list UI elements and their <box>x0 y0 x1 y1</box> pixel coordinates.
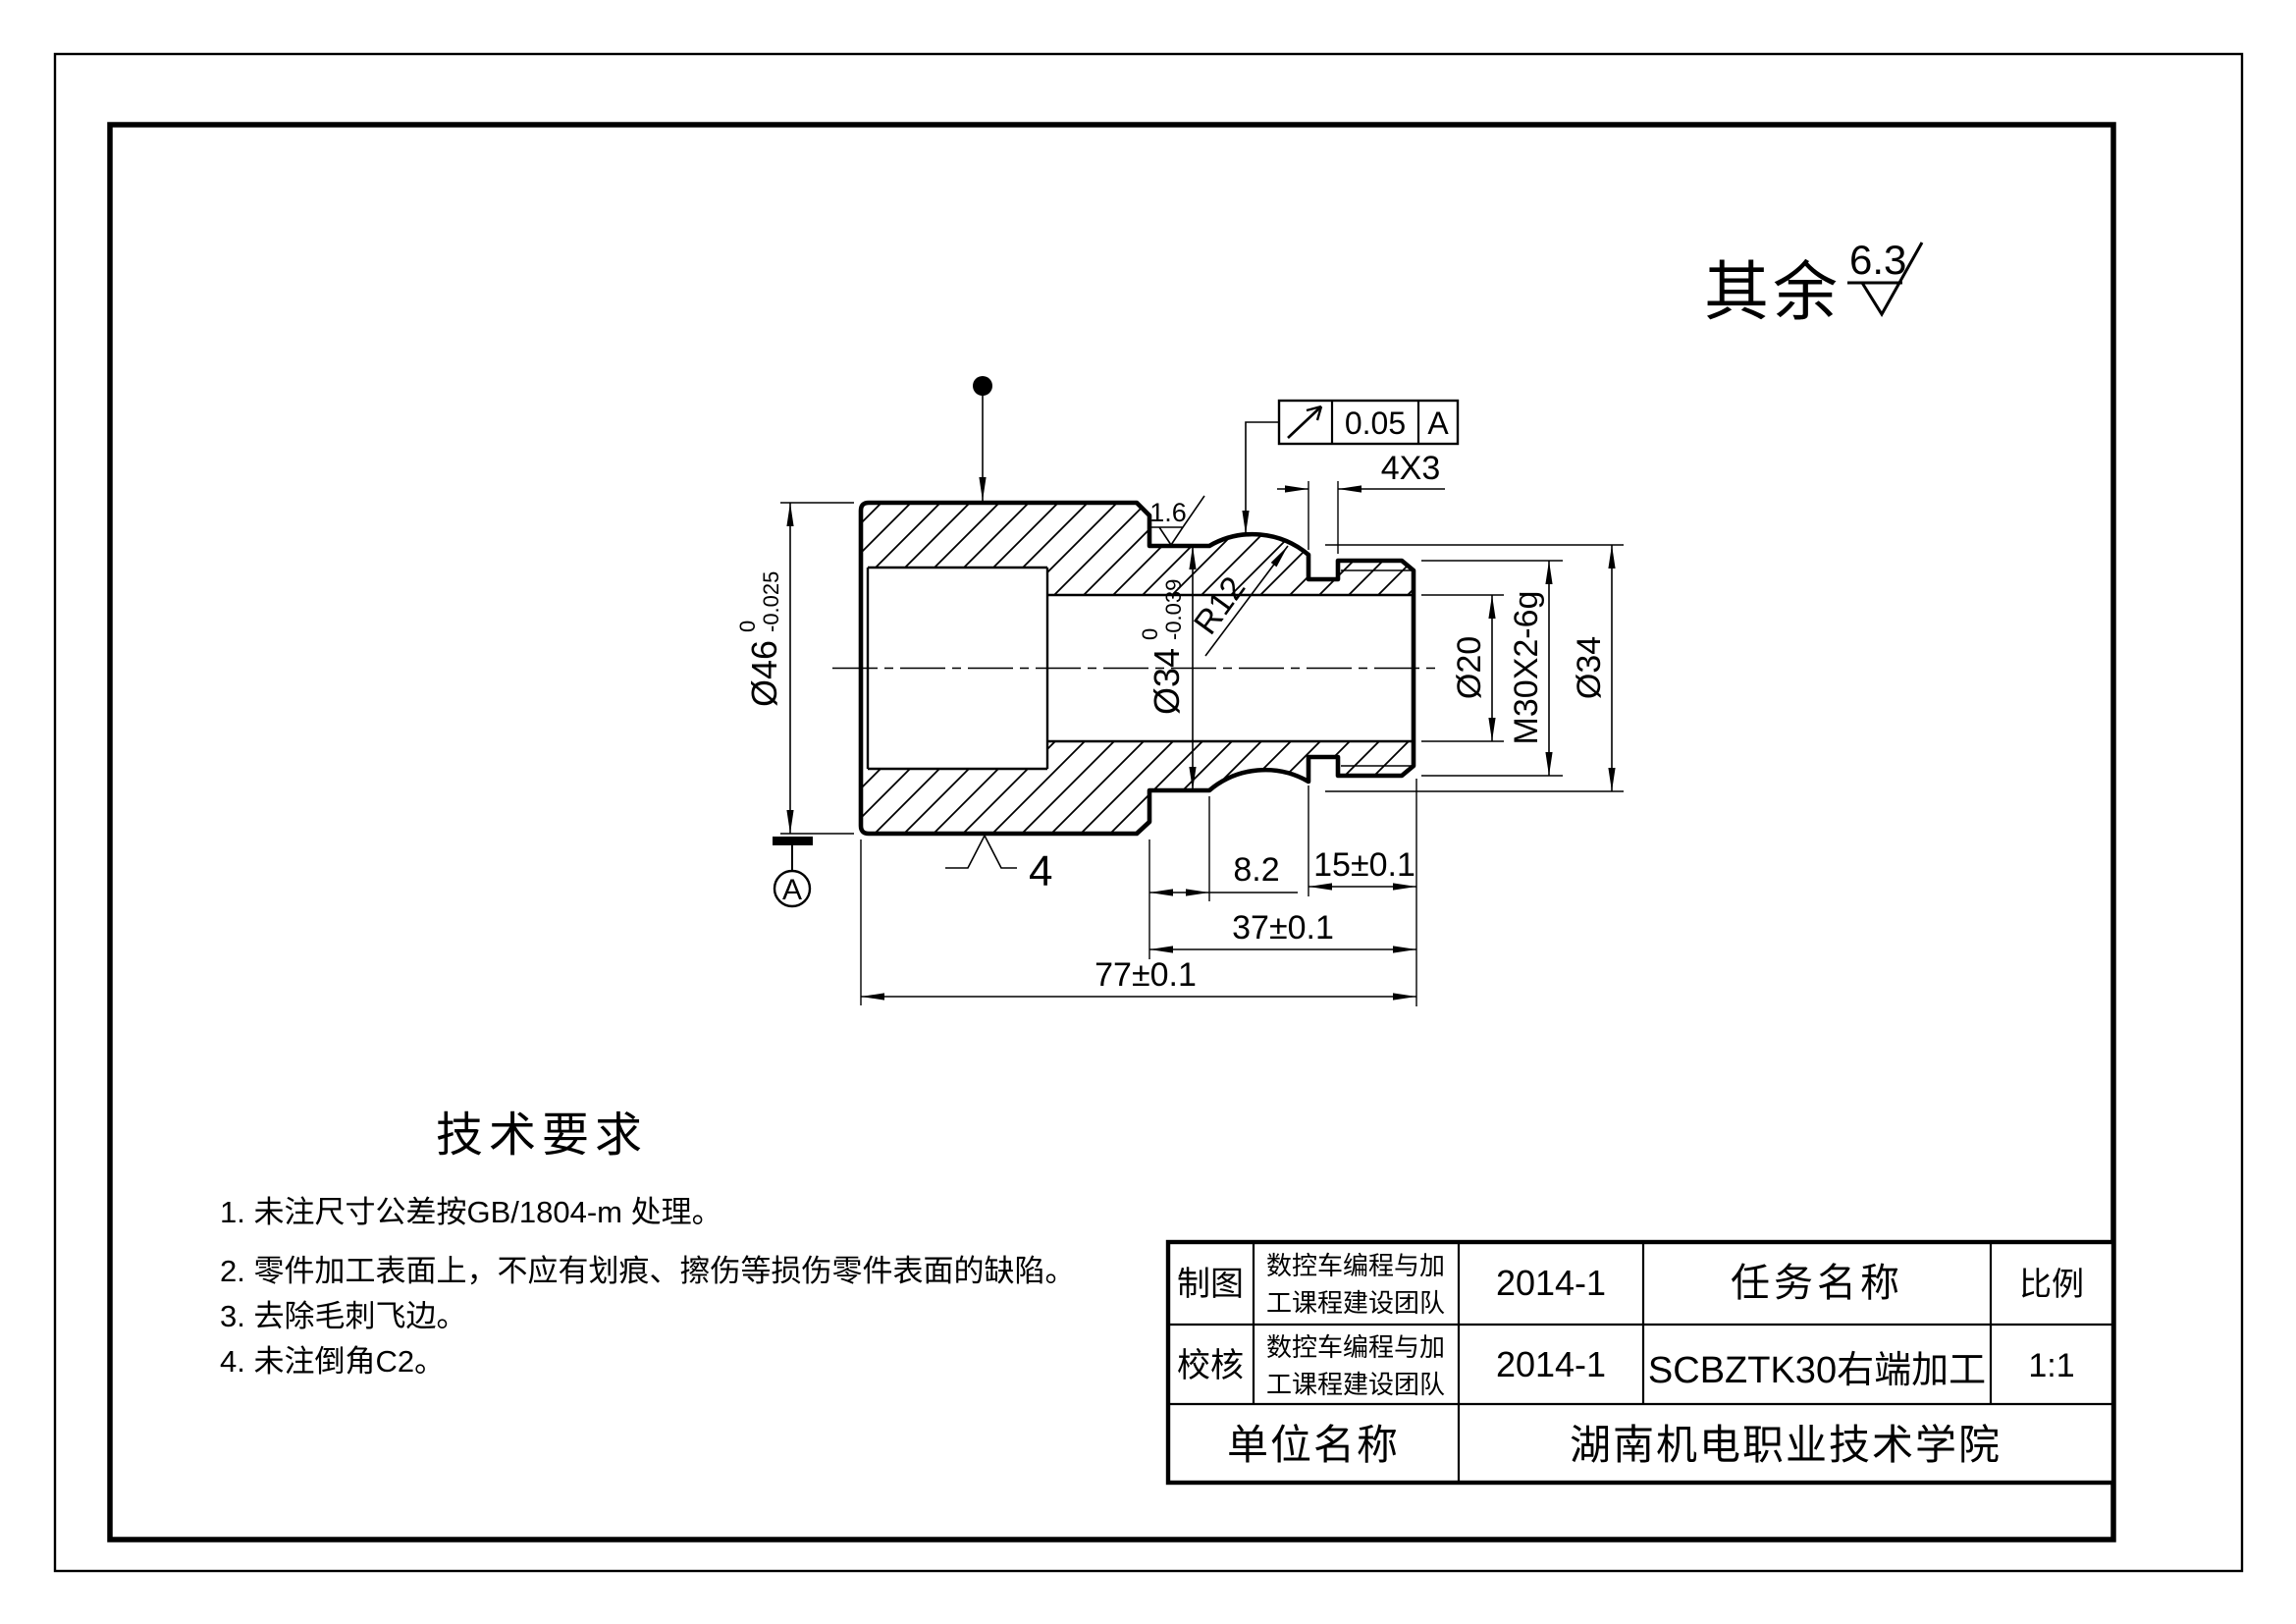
titleblock-date-row2: 2014-1 <box>1496 1344 1606 1384</box>
dim-d20: Ø20 <box>1451 636 1488 699</box>
fcf-leader-line <box>1246 422 1279 534</box>
tech-requirement-item: 1. 未注尺寸公差按GB/1804-m 处理。 <box>220 1195 722 1229</box>
roughness-neck-value: 1.6 <box>1149 498 1187 527</box>
fcf-datum-ref: A <box>1427 406 1449 441</box>
point-dot-icon <box>973 376 992 396</box>
dim-groove-value: 4X3 <box>1381 450 1441 487</box>
roughness-symbol-neck: 1.6 <box>1148 496 1204 545</box>
drawing-sheet: Ø46 0 -0.025 Ø34 0 -0.039 R12 Ø20 M30X2-… <box>0 0 2296 1624</box>
tech-requirement-item: 2. 零件加工表面上，不应有划痕、擦伤等损伤零件表面的缺陷。 <box>220 1254 1075 1288</box>
roughness-note-value: 6.3 <box>1849 237 1906 283</box>
dim-37-value: 37±0.1 <box>1232 909 1334 947</box>
titleblock-drawn-by-label: 制图 <box>1177 1266 1244 1303</box>
dim-d46-value: Ø46 <box>744 640 784 707</box>
titleblock-team2-line1: 数控车编程与加 <box>1266 1332 1445 1362</box>
surface-tag: 4 <box>945 836 1052 895</box>
technical-requirements: 技术要求 1. 未注尺寸公差按GB/1804-m 处理。 2. 零件加工表面上，… <box>220 1110 1075 1379</box>
dim-thread: M30X2-6g <box>1508 591 1545 745</box>
dim-d34-neck-value: Ø34 <box>1147 648 1187 715</box>
datum-a-label: A <box>782 874 802 906</box>
dim-neck-width-value: 8.2 <box>1233 851 1279 889</box>
dim-d34-neck-lower-tol: -0.039 <box>1161 579 1186 640</box>
titleblock-team-line1: 数控车编程与加 <box>1266 1251 1445 1280</box>
titleblock-checked-by-label: 校核 <box>1177 1347 1244 1384</box>
tech-requirements-title: 技术要求 <box>436 1110 648 1162</box>
datum-a-symbol: A <box>773 837 813 906</box>
engineering-drawing: Ø46 0 -0.025 Ø34 0 -0.039 R12 Ø20 M30X2-… <box>0 0 2296 1624</box>
dim-d34-neck-upper-tol: 0 <box>1138 628 1162 640</box>
titleblock-org-header: 单位名称 <box>1227 1422 1400 1468</box>
roughness-note-prefix: 其余 <box>1704 255 1842 328</box>
part-section-view <box>832 503 1441 834</box>
titleblock-task-name: SCBZTK30右端加工 <box>1648 1350 1986 1391</box>
dim-d46-upper-tol: 0 <box>735 621 760 632</box>
dim-d20-value: Ø20 <box>1451 636 1488 699</box>
dim-d46-lower-tol: -0.025 <box>759 571 783 632</box>
surface-point-marker <box>973 376 992 501</box>
fcf-tolerance-value: 0.05 <box>1345 406 1406 441</box>
tech-requirement-item: 3. 去除毛刺飞边。 <box>220 1299 466 1333</box>
title-block: 制图 数控车编程与加 工课程建设团队 2014-1 任务名称 比例 校核 数控车… <box>1168 1242 2113 1483</box>
general-roughness-note: 其余 6.3 <box>1704 237 1922 328</box>
dim-d34: Ø34 <box>1571 636 1608 699</box>
dim-d46: Ø46 0 -0.025 <box>735 571 784 707</box>
titleblock-scale-value: 1:1 <box>2028 1347 2074 1384</box>
tech-requirement-item: 4. 未注倒角C2。 <box>220 1344 445 1379</box>
dim-15-value: 15±0.1 <box>1313 846 1415 884</box>
dim-thread-value: M30X2-6g <box>1508 591 1545 745</box>
dim-77-value: 77±0.1 <box>1095 956 1197 994</box>
titleblock-date-row1: 2014-1 <box>1496 1263 1606 1303</box>
dim-d34-neck: Ø34 0 -0.039 <box>1138 579 1187 715</box>
dim-d34-value: Ø34 <box>1571 636 1608 699</box>
zigzag-leader-icon <box>945 836 1017 868</box>
surface-tag-label: 4 <box>1029 847 1052 895</box>
titleblock-team-line2: 工课程建设团队 <box>1266 1288 1445 1318</box>
titleblock-task-header: 任务名称 <box>1731 1262 1903 1305</box>
datum-triangle-icon <box>773 837 813 845</box>
titleblock-org-name: 湖南机电职业技术学院 <box>1570 1422 2002 1468</box>
titleblock-team2-line2: 工课程建设团队 <box>1266 1370 1445 1399</box>
titleblock-scale-header: 比例 <box>2019 1266 2084 1302</box>
